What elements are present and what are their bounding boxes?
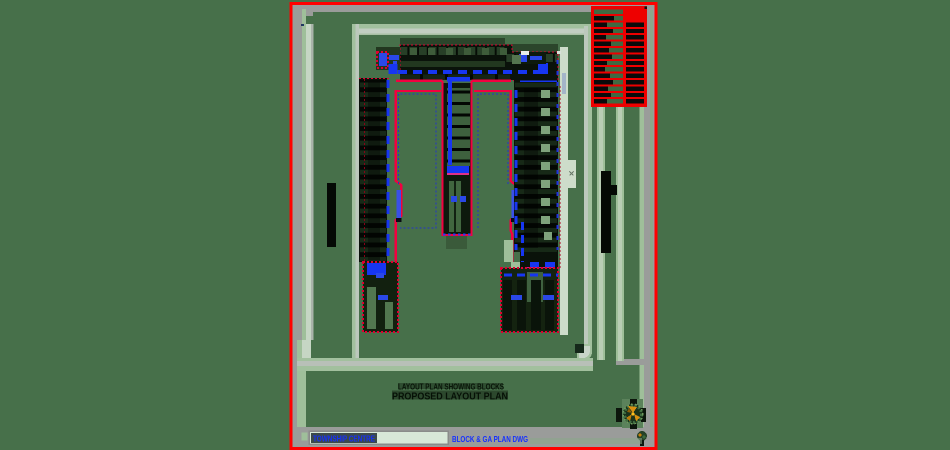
svg-text:BLOCK & GA PLAN DWG: BLOCK & GA PLAN DWG xyxy=(452,434,528,444)
svg-text:TOWNSHIP CENTRE: TOWNSHIP CENTRE xyxy=(313,435,376,444)
